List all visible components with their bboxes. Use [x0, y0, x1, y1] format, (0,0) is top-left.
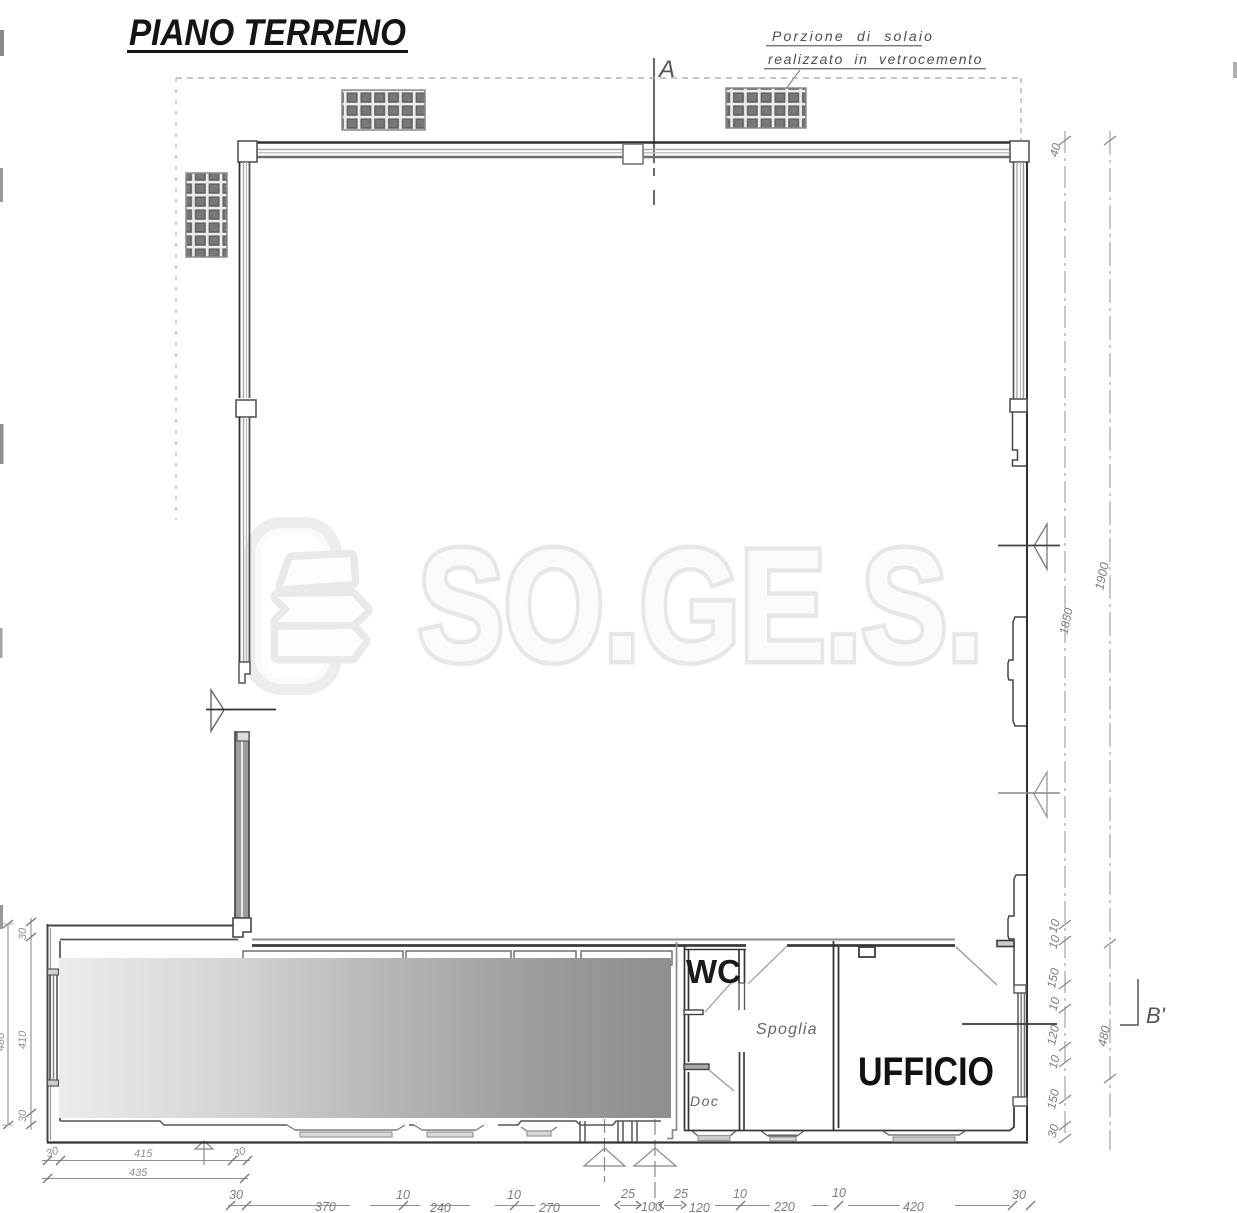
svg-text:150: 150 [1044, 967, 1062, 990]
svg-text:480: 480 [0, 1032, 7, 1051]
svg-text:120: 120 [1044, 1024, 1062, 1047]
svg-text:UFFICIO: UFFICIO [858, 1050, 994, 1094]
svg-text:10: 10 [396, 1188, 410, 1202]
svg-text:SO.GE.S.: SO.GE.S. [418, 516, 983, 694]
svg-text:30: 30 [1012, 1188, 1026, 1202]
svg-text:realizzato in vetrocemento: realizzato in vetrocemento [768, 51, 983, 67]
svg-text:30: 30 [232, 1145, 248, 1161]
svg-text:25: 25 [620, 1187, 635, 1201]
svg-text:240: 240 [429, 1201, 451, 1213]
svg-text:1900: 1900 [1092, 561, 1111, 591]
svg-text:30: 30 [229, 1188, 243, 1202]
svg-text:10: 10 [733, 1187, 747, 1201]
svg-text:A: A [657, 56, 675, 83]
svg-text:Porzione di solaio: Porzione di solaio [772, 28, 934, 44]
svg-text:30: 30 [45, 1145, 61, 1161]
svg-text:420: 420 [903, 1200, 924, 1213]
svg-text:PIANO TERRENO: PIANO TERRENO [129, 12, 406, 53]
svg-text:Doc: Doc [690, 1093, 719, 1109]
svg-text:150: 150 [1044, 1088, 1062, 1111]
svg-text:30: 30 [17, 1109, 29, 1122]
svg-text:435: 435 [129, 1167, 148, 1179]
svg-text:410: 410 [17, 1030, 29, 1049]
svg-text:30: 30 [17, 927, 29, 940]
svg-text:10: 10 [1046, 1053, 1063, 1070]
svg-text:25: 25 [673, 1187, 688, 1201]
svg-text:Spoglia: Spoglia [756, 1021, 818, 1038]
svg-text:10: 10 [832, 1186, 846, 1200]
svg-text:B': B' [1146, 1003, 1166, 1028]
svg-text:10: 10 [507, 1188, 521, 1202]
svg-text:120: 120 [689, 1201, 710, 1213]
svg-text:10: 10 [1046, 917, 1063, 934]
svg-text:415: 415 [134, 1148, 153, 1160]
svg-text:370: 370 [315, 1200, 336, 1213]
svg-text:100: 100 [641, 1200, 662, 1213]
svg-text:10: 10 [1046, 995, 1063, 1012]
svg-text:480: 480 [1095, 1024, 1113, 1047]
svg-text:1850: 1850 [1056, 606, 1075, 635]
svg-text:30: 30 [1045, 1122, 1062, 1139]
svg-text:220: 220 [773, 1200, 795, 1213]
svg-text:WC: WC [686, 953, 741, 990]
svg-text:270: 270 [538, 1201, 560, 1213]
svg-text:10: 10 [1046, 933, 1063, 950]
